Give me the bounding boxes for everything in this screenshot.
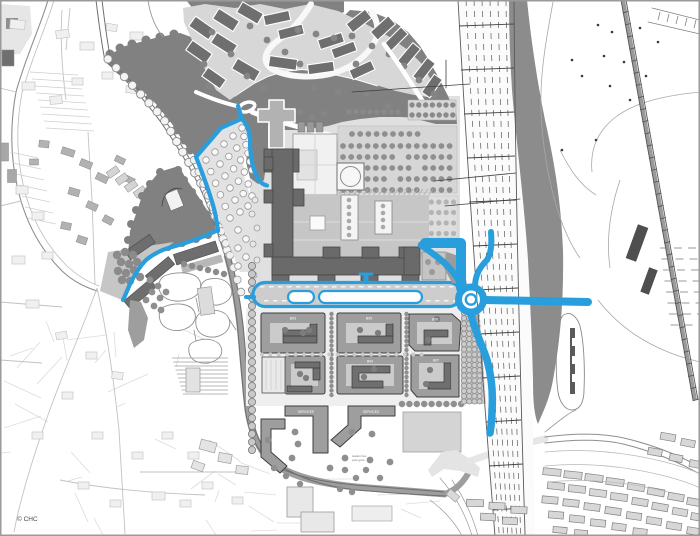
svg-text:B03: B03 [290,317,296,321]
svg-text:B06: B06 [432,318,438,322]
svg-text:B07: B07 [433,359,439,363]
svg-text:pole gare: pole gare [352,458,365,462]
svg-text:SERVICES: SERVICES [363,410,379,414]
svg-text:SERVICES: SERVICES [298,410,314,414]
svg-text:© CHC: © CHC [17,515,38,523]
svg-text:B05: B05 [366,317,372,321]
svg-text:B04: B04 [367,360,373,364]
